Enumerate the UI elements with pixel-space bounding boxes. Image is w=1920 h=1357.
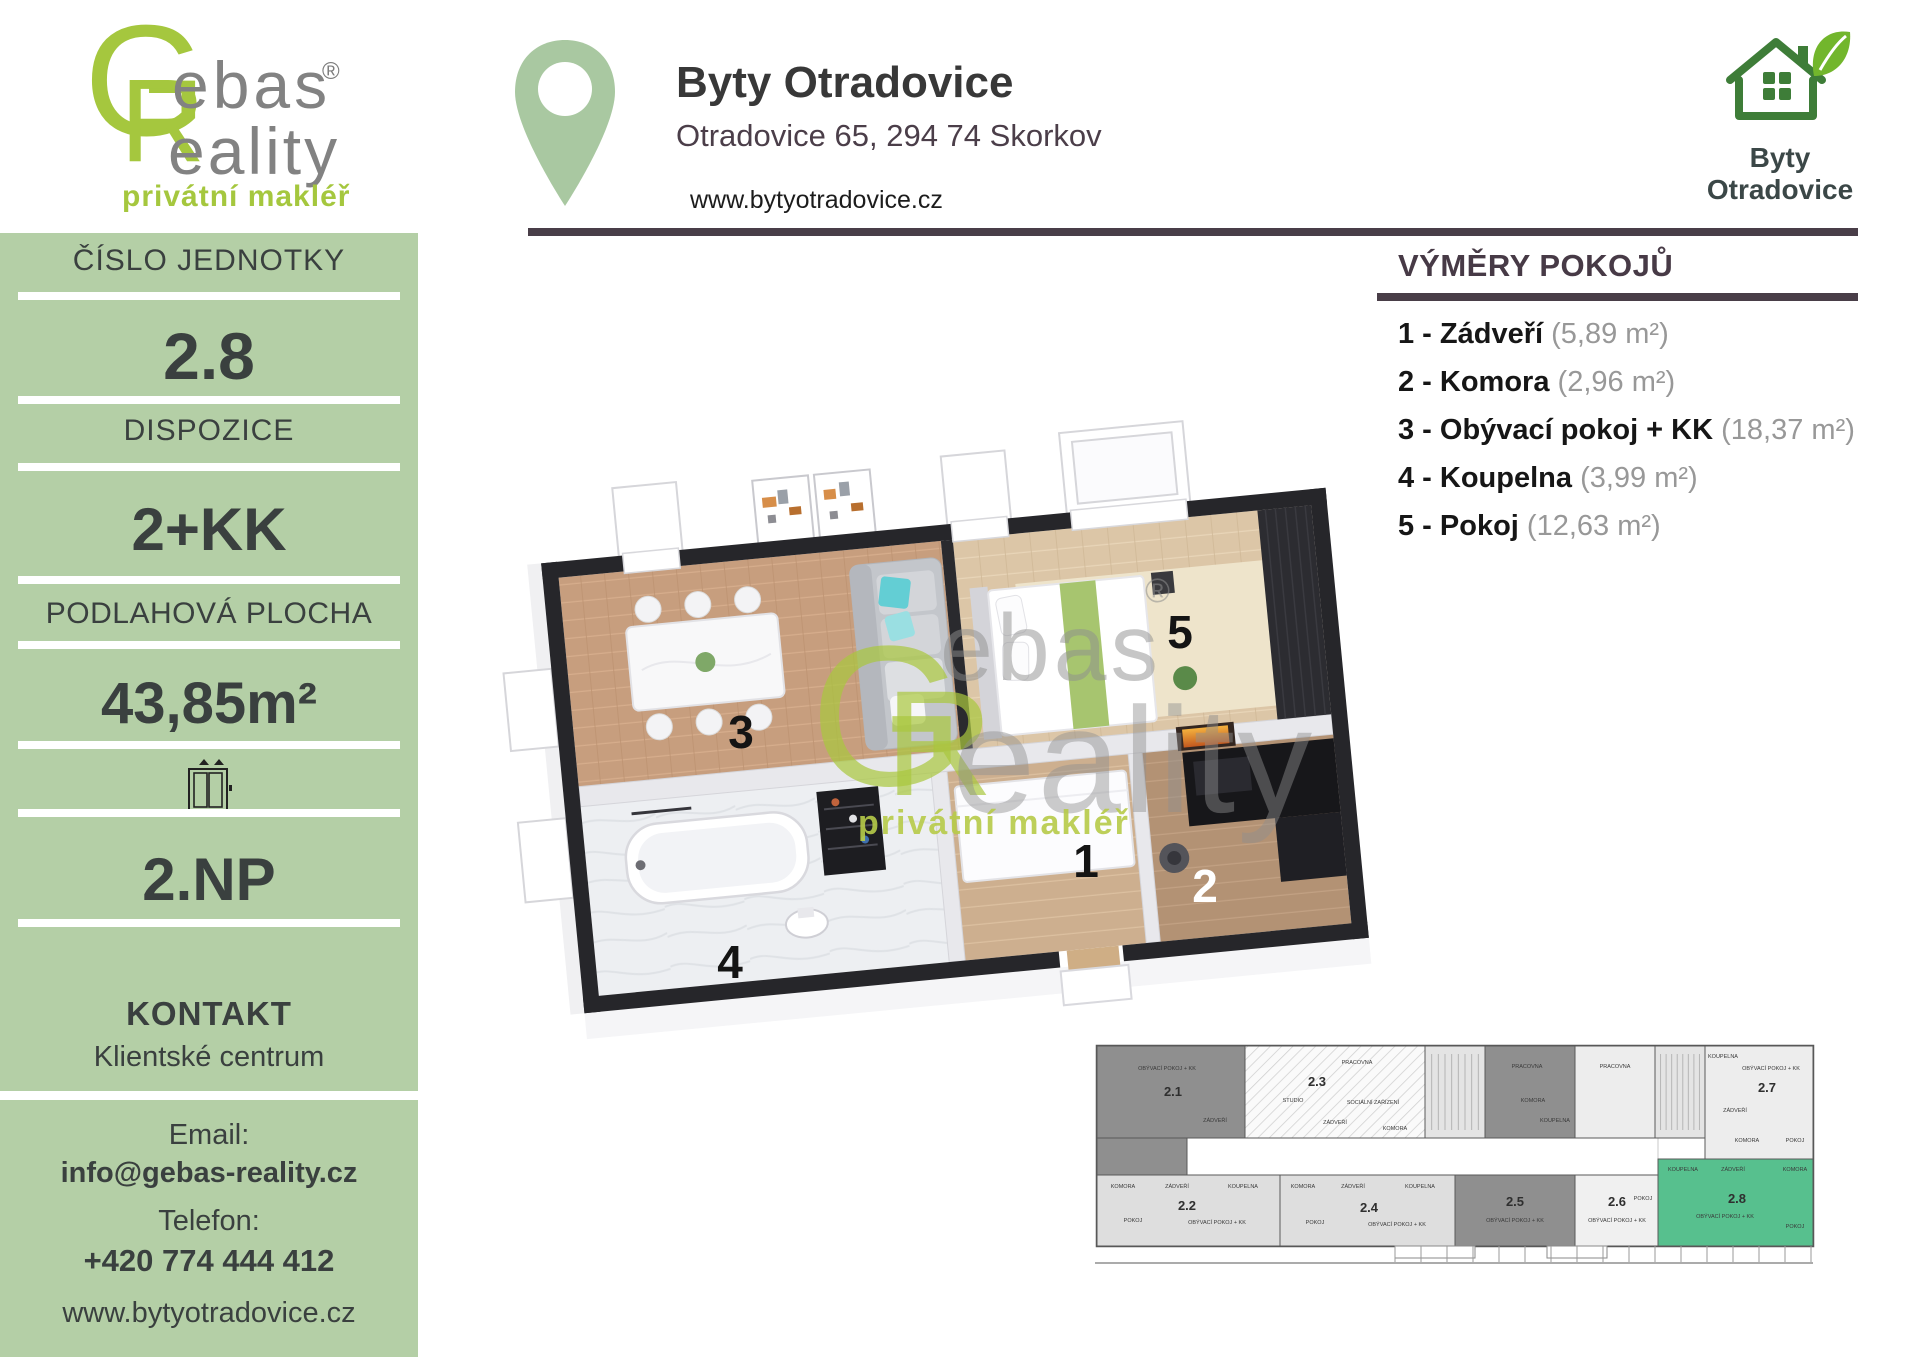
unit-number-2.4: 2.4	[1360, 1200, 1379, 1215]
room-area-value: (18,37 m²)	[1713, 414, 1855, 446]
mini-room-label: ZÁDVEŘÍ	[1203, 1116, 1227, 1124]
floorplan-room-number: 1	[1073, 835, 1099, 887]
mini-room-label: ZÁDVEŘÍ	[1165, 1182, 1189, 1190]
mini-room-label: PRACOVNA	[1342, 1060, 1373, 1066]
sidebar-divider	[18, 292, 400, 300]
room-area-item: 5 - Pokoj (12,63 m²)	[1398, 510, 1878, 558]
room-area-name: 2 - Komora	[1398, 366, 1549, 398]
mini-room-label: KOMORA	[1383, 1126, 1408, 1132]
mini-room-label: OBÝVACÍ POKOJ + KK	[1696, 1213, 1754, 1220]
contact-name: Klientské centrum	[0, 1041, 418, 1074]
door-frame	[612, 482, 682, 558]
room-areas-title: VÝMĚRY POKOJŮ	[1398, 248, 1673, 284]
unit-area	[1097, 1138, 1187, 1175]
gebas-word-top: ebas	[172, 52, 331, 118]
mini-room-label: OBÝVACÍ POKOJ + KK	[1742, 1065, 1800, 1072]
elevator-icon	[177, 757, 241, 813]
sidebar-divider	[18, 641, 400, 649]
mini-room-label: ZÁDVEŘÍ	[1341, 1182, 1365, 1190]
room-area-item: 1 - Zádveří (5,89 m²)	[1398, 318, 1878, 366]
room-area-value: (3,99 m²)	[1572, 462, 1698, 494]
gebas-reality-logo: G R ebas ® eality privátní makléř	[60, 18, 360, 208]
room-area-item: 4 - Koupelna (3,99 m²)	[1398, 462, 1878, 510]
page-address: Otradovice 65, 294 74 Skorkov	[676, 118, 1102, 154]
room-areas-list: 1 - Zádveří (5,89 m²)2 - Komora (2,96 m²…	[1398, 318, 1878, 558]
layout-label: DISPOZICE	[0, 414, 418, 448]
mini-room-label: POKOJ	[1786, 1138, 1805, 1144]
email-label: Email:	[0, 1119, 418, 1152]
mini-room-label: KOUPELNA	[1668, 1167, 1698, 1173]
logo-right-line2: Otradovice	[1688, 174, 1872, 206]
unit-number-2.3: 2.3	[1308, 1074, 1326, 1089]
location-pin-icon	[507, 34, 623, 212]
floor-area-label: PODLAHOVÁ PLOCHA	[0, 597, 418, 631]
mini-room-label: STUDIO	[1283, 1098, 1305, 1104]
house-leaf-icon	[1706, 24, 1856, 136]
ground-line	[1095, 1246, 1813, 1263]
corridor	[1187, 1138, 1658, 1175]
email-link[interactable]: info@gebas-reality.cz	[0, 1157, 418, 1190]
apartment-3d-floorplan: G R ebas ® eality privátní makléř 35412	[490, 440, 1430, 1020]
mini-room-label: PRACOVNA	[1512, 1064, 1543, 1070]
mini-room-label: SOCIÁLNÍ ZAŘÍZENÍ	[1347, 1098, 1400, 1106]
unit-number-label: ČÍSLO JEDNOTKY	[0, 244, 418, 278]
unit-area	[1575, 1046, 1655, 1138]
unit-number-2.1: 2.1	[1164, 1084, 1182, 1099]
mini-room-label: KOUPELNA	[1405, 1184, 1435, 1190]
sidebar-divider	[18, 576, 400, 584]
floorplan-room-number: 3	[728, 706, 754, 758]
logo-right-line1: Byty	[1688, 142, 1872, 174]
mini-room-label: POKOJ	[1124, 1218, 1143, 1224]
room-area-name: 3 - Obývací pokoj + KK	[1398, 414, 1713, 446]
room-area-item: 2 - Komora (2,96 m²)	[1398, 366, 1878, 414]
room-areas-underline	[1377, 293, 1858, 301]
unit-number-value: 2.8	[0, 318, 418, 394]
mini-room-label: OBÝVACÍ POKOJ + KK	[1368, 1221, 1426, 1228]
room-area-value: (2,96 m²)	[1549, 366, 1675, 398]
mini-room-label: KOMORA	[1291, 1184, 1316, 1190]
window-frame	[504, 669, 559, 751]
room-area-value: (12,63 m²)	[1519, 510, 1661, 542]
gebas-tagline: privátní makléř	[122, 180, 350, 214]
header-website-link[interactable]: www.bytyotradovice.cz	[690, 186, 943, 215]
watermark-registered: ®	[1145, 572, 1170, 610]
floorplan-room-number: 5	[1167, 606, 1193, 658]
flyer-page: G R ebas ® eality privátní makléř Byty O…	[0, 0, 1920, 1357]
unit-2.6	[1575, 1175, 1658, 1246]
unit-area	[1485, 1046, 1575, 1138]
mini-room-label: KOUPELNA	[1708, 1054, 1738, 1060]
mini-room-label: OBÝVACÍ POKOJ + KK	[1486, 1217, 1544, 1224]
gebas-word-bottom: eality	[168, 118, 340, 184]
header-divider	[528, 228, 1858, 236]
mini-room-label: POKOJ	[1306, 1220, 1325, 1226]
unit-number-2.5: 2.5	[1506, 1194, 1524, 1209]
entrance-door	[1059, 945, 1132, 1005]
sidebar-divider	[18, 919, 400, 927]
mini-room-label: OBÝVACÍ POKOJ + KK	[1588, 1217, 1646, 1224]
mini-room-label: ZÁDVEŘÍ	[1723, 1106, 1747, 1114]
floorplan-room-number: 2	[1192, 860, 1218, 912]
building-floor-overview-plan: 2.12.32.72.22.42.52.62.8 OBÝVACÍ POKOJ +…	[1095, 1040, 1815, 1270]
registered-mark: ®	[322, 58, 340, 86]
sidebar-divider	[18, 741, 400, 749]
room-area-value: (5,89 m²)	[1543, 318, 1669, 350]
unit-number-2.7: 2.7	[1758, 1080, 1776, 1095]
phone-label: Telefon:	[0, 1205, 418, 1238]
byty-otradovice-logo: Byty Otradovice	[1688, 24, 1872, 204]
mini-room-label: OBÝVACÍ POKOJ + KK	[1138, 1065, 1196, 1072]
mini-room-label: ZÁDVEŘÍ	[1323, 1118, 1347, 1126]
room-area-name: 1 - Zádveří	[1398, 318, 1543, 350]
mini-room-label: POKOJ	[1634, 1196, 1653, 1202]
window-frame	[518, 818, 573, 902]
mini-room-label: KOMORA	[1521, 1098, 1546, 1104]
sidebar-divider	[18, 809, 400, 817]
floorplan-room-number: 4	[717, 936, 743, 988]
mini-room-label: KOUPELNA	[1228, 1184, 1258, 1190]
mini-room-label: POKOJ	[1786, 1224, 1805, 1230]
mini-room-label: KOMORA	[1783, 1167, 1808, 1173]
unit-area	[1425, 1046, 1485, 1138]
unit-number-2.2: 2.2	[1178, 1198, 1196, 1213]
mini-room-label: ZÁDVEŘÍ	[1721, 1165, 1745, 1173]
mini-room-label: KOUPELNA	[1540, 1118, 1570, 1124]
contact-label: KONTAKT	[0, 995, 418, 1033]
unit-number-2.6: 2.6	[1608, 1194, 1626, 1209]
sidebar-website-link[interactable]: www.bytyotradovice.cz	[0, 1297, 418, 1330]
sidebar-section-break	[0, 1091, 418, 1100]
mini-room-label: KOMORA	[1735, 1138, 1760, 1144]
layout-value: 2+KK	[0, 495, 418, 564]
floor-area-value: 43,85m²	[0, 670, 418, 737]
unit-area	[1655, 1046, 1705, 1138]
floor-level-value: 2.NP	[0, 845, 418, 914]
mini-room-label: KOMORA	[1111, 1184, 1136, 1190]
page-title: Byty Otradovice	[676, 58, 1013, 108]
door-frame	[941, 450, 1011, 526]
sidebar-divider	[18, 463, 400, 471]
sidebar-divider	[18, 396, 400, 404]
mini-room-label: OBÝVACÍ POKOJ + KK	[1188, 1219, 1246, 1226]
mini-room-label: PRACOVNA	[1600, 1064, 1631, 1070]
room-area-item: 3 - Obývací pokoj + KK (18,37 m²)	[1398, 414, 1878, 462]
unit-number-2.8: 2.8	[1728, 1191, 1746, 1206]
unit-2.5	[1455, 1175, 1575, 1246]
unit-info-sidebar: ČÍSLO JEDNOTKY 2.8 DISPOZICE 2+KK PODLAH…	[0, 233, 418, 1357]
phone-link[interactable]: +420 774 444 412	[0, 1243, 418, 1279]
